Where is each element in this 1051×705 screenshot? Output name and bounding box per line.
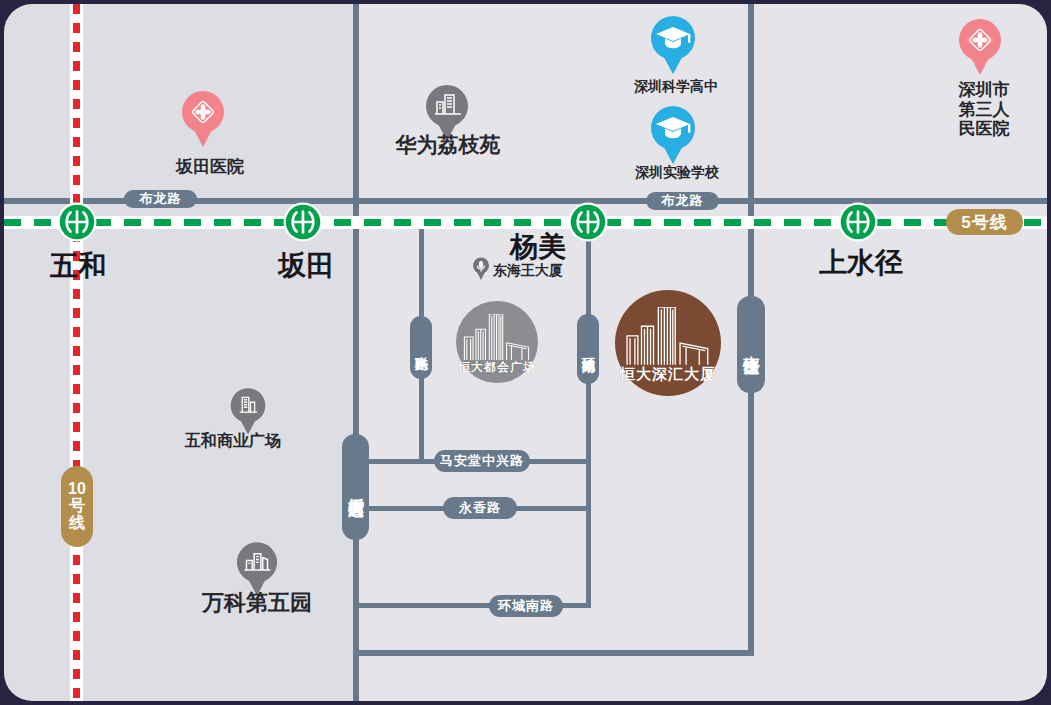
school-pin-icon <box>648 104 698 168</box>
metro-line5-badge: 5号线 <box>946 209 1023 235</box>
metro-line10-badge-text: 10号线 <box>68 481 86 531</box>
poi-label-science-high-school: 深圳科学高中 <box>634 78 718 94</box>
map-frame: 布龙路 布龙路 坂雪岗大道 联光路 环城南路 南坪快速 马安堂中兴路 永香路 环… <box>0 0 1051 705</box>
metro-line10-dashes <box>73 4 80 701</box>
road-badge-bulong-east: 布龙路 <box>646 192 719 210</box>
road-bottom-connector-line <box>356 650 754 656</box>
station-label-yangmei: 杨美 <box>510 228 566 266</box>
poi-label-huawei-lizhiyuan: 华为荔枝苑 <box>396 133 501 157</box>
project-label: 恒大深汇大厦 <box>620 365 716 384</box>
station-label-wuhe: 五和 <box>50 247 106 285</box>
poi-label-experimental-school: 深圳实验学校 <box>635 164 719 180</box>
station-icon-shangshuijing <box>838 202 878 242</box>
metro-line10-badge: 10号线 <box>61 466 93 547</box>
station-label-shangshuijing: 上水径 <box>819 244 903 282</box>
buildings-art-icon <box>460 314 534 361</box>
station-icon-wuhe <box>57 202 97 242</box>
hospital-pin-icon <box>957 18 1003 80</box>
hospital-pin-icon <box>180 90 226 152</box>
station-label-bantian: 坂田 <box>278 247 334 285</box>
school-pin-icon <box>648 14 698 78</box>
poi-label-donghaiwang-tower: 东海王大厦 <box>493 262 563 278</box>
road-badge-maantang: 马安堂中兴路 <box>434 450 530 472</box>
station-icon-yangmei <box>568 202 608 242</box>
poi-label-bantian-hospital: 坂田医院 <box>176 157 244 177</box>
poi-label-third-peoples-hospital: 深圳市 第三人民医院 <box>953 80 1016 139</box>
station-icon-bantian <box>283 202 323 242</box>
location-map: 布龙路 布龙路 坂雪岗大道 联光路 环城南路 南坪快速 马安堂中兴路 永香路 环… <box>4 4 1047 701</box>
project-circle-hengda-shenhui: 恒大深汇大厦 <box>615 290 721 396</box>
road-badge-huancheng-vertical: 环城南路 <box>577 314 599 384</box>
building-small-pin-icon <box>472 257 490 282</box>
poi-label-vanke-fifth-garden: 万科第五园 <box>202 590 312 615</box>
road-badge-lianguang: 联光路 <box>410 316 432 379</box>
project-circle-hengda-metropolis: 恒大都会广场 <box>456 301 538 383</box>
road-badge-bulong-west: 布龙路 <box>124 190 197 208</box>
road-badge-nanping: 南坪快速 <box>737 296 765 393</box>
road-badge-banxuegang: 坂雪岗大道 <box>342 434 369 540</box>
road-banxuegang-line <box>353 4 359 701</box>
road-badge-huancheng-horizontal: 环城南路 <box>489 595 563 617</box>
road-huancheng-vertical-line <box>586 222 591 608</box>
project-label: 恒大都会广场 <box>458 359 536 376</box>
metro-line10-track <box>70 4 83 701</box>
buildings-art-icon <box>622 307 714 366</box>
metro-line5-dashes <box>4 219 1047 226</box>
road-badge-yongxiang: 永香路 <box>443 497 517 519</box>
poi-label-wuhe-commercial-plaza: 五和商业广场 <box>185 432 281 450</box>
